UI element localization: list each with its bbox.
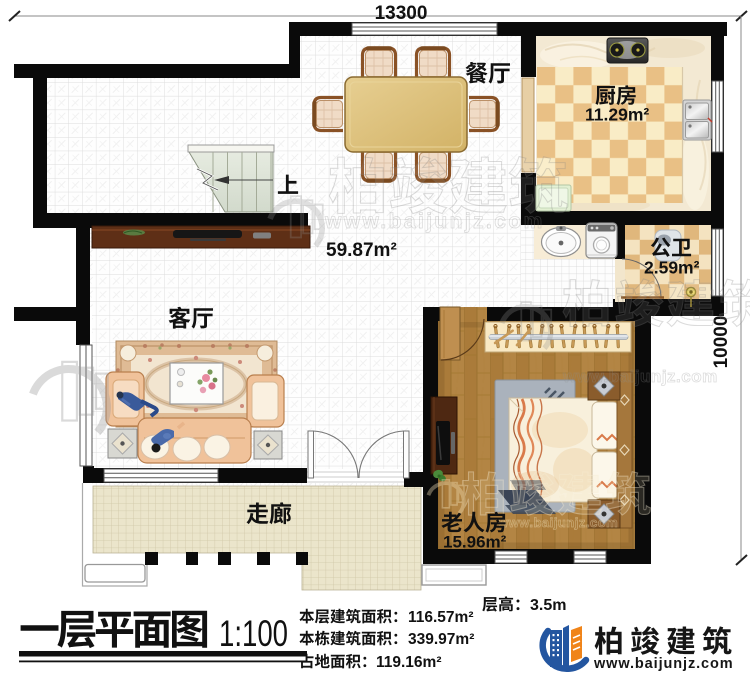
svg-text:119.16m²: 119.16m² [376,654,442,671]
svg-text:59.87m²: 59.87m² [326,240,397,261]
svg-text:116.57m²: 116.57m² [408,609,474,626]
svg-text:10000: 10000 [711,316,732,369]
svg-text:11.29m²: 11.29m² [585,105,649,125]
svg-text:3.5m: 3.5m [530,597,566,614]
svg-text:339.97m²: 339.97m² [408,631,474,648]
svg-text:www.baijunjz.com: www.baijunjz.com [593,656,734,672]
svg-text:15.96m²: 15.96m² [443,533,507,552]
svg-text:2.59m²: 2.59m² [644,258,700,278]
svg-text:1:100: 1:100 [219,613,288,654]
svg-text:www.baijunjz.com: www.baijunjz.com [324,210,545,233]
svg-text:13300: 13300 [375,3,428,24]
svg-text:www.baijunjz.com: www.baijunjz.com [497,515,618,530]
svg-text:www.baijunjz.com: www.baijunjz.com [562,367,718,386]
